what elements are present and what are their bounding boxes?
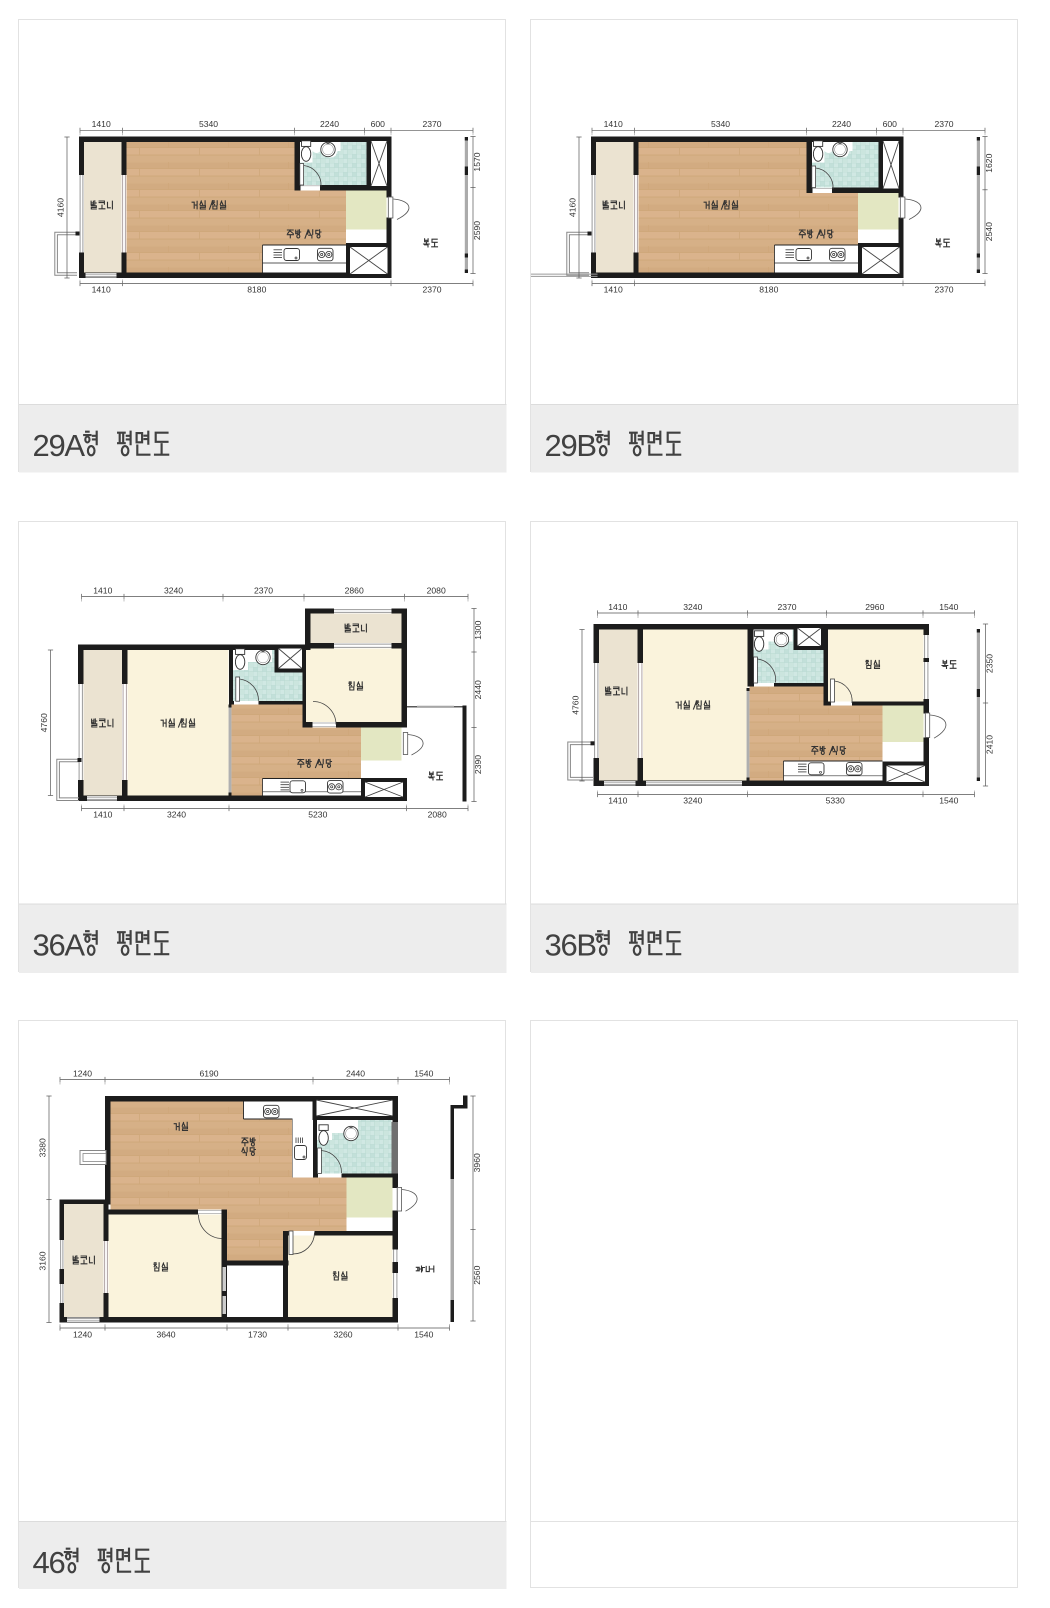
svg-text:5340: 5340: [199, 119, 218, 129]
svg-text:2370: 2370: [934, 285, 953, 295]
svg-text:600: 600: [371, 119, 386, 129]
svg-text:2540: 2540: [984, 222, 994, 241]
svg-text:1240: 1240: [73, 1068, 92, 1078]
svg-text:2440: 2440: [346, 1068, 365, 1078]
svg-text:1540: 1540: [414, 1068, 433, 1078]
svg-text:2240: 2240: [320, 119, 339, 129]
svg-text:4160: 4160: [568, 198, 578, 217]
svg-text:3260: 3260: [333, 1330, 352, 1340]
svg-text:1410: 1410: [92, 119, 111, 129]
svg-text:1730: 1730: [248, 1330, 267, 1340]
svg-text:1240: 1240: [73, 1330, 92, 1340]
svg-text:4760: 4760: [571, 695, 581, 714]
svg-text:2370: 2370: [934, 119, 953, 129]
svg-text:36A: 36A: [33, 928, 86, 963]
svg-text:2390: 2390: [473, 755, 483, 774]
svg-text:46: 46: [33, 1545, 65, 1580]
svg-text:1300: 1300: [473, 620, 483, 639]
svg-text:1570: 1570: [472, 152, 482, 171]
svg-text:3640: 3640: [156, 1330, 175, 1340]
svg-text:2350: 2350: [985, 654, 995, 673]
svg-text:3240: 3240: [683, 796, 702, 806]
svg-text:1410: 1410: [604, 285, 623, 295]
svg-text:8180: 8180: [759, 285, 778, 295]
svg-text:3240: 3240: [683, 602, 702, 612]
svg-text:2080: 2080: [428, 810, 447, 820]
svg-text:5330: 5330: [826, 796, 845, 806]
svg-text:1410: 1410: [93, 585, 112, 595]
svg-text:5340: 5340: [711, 119, 730, 129]
svg-text:36B: 36B: [545, 928, 597, 963]
svg-text:2860: 2860: [345, 585, 364, 595]
svg-text:1410: 1410: [93, 810, 112, 820]
svg-text:1410: 1410: [604, 119, 623, 129]
svg-text:2590: 2590: [472, 221, 482, 240]
svg-text:1540: 1540: [414, 1330, 433, 1340]
svg-text:1540: 1540: [939, 796, 958, 806]
svg-text:2370: 2370: [422, 285, 441, 295]
svg-text:6190: 6190: [199, 1068, 218, 1078]
svg-text:2410: 2410: [985, 735, 995, 754]
svg-text:1540: 1540: [939, 602, 958, 612]
svg-text:3160: 3160: [38, 1251, 48, 1270]
svg-text:3240: 3240: [164, 585, 183, 595]
svg-text:1410: 1410: [92, 285, 111, 295]
svg-text:3240: 3240: [167, 810, 186, 820]
svg-text:8180: 8180: [247, 285, 266, 295]
svg-text:1410: 1410: [608, 602, 627, 612]
svg-text:2370: 2370: [254, 585, 273, 595]
svg-text:3380: 3380: [38, 1138, 48, 1157]
svg-text:2080: 2080: [427, 585, 446, 595]
svg-text:29B: 29B: [545, 428, 597, 463]
svg-text:29A: 29A: [33, 428, 86, 463]
svg-text:600: 600: [883, 119, 898, 129]
svg-text:2440: 2440: [473, 680, 483, 699]
svg-text:4160: 4160: [56, 198, 66, 217]
svg-text:2370: 2370: [422, 119, 441, 129]
svg-text:1620: 1620: [984, 153, 994, 172]
svg-text:2240: 2240: [832, 119, 851, 129]
svg-text:1410: 1410: [608, 796, 627, 806]
svg-text:5230: 5230: [308, 810, 327, 820]
svg-text:2370: 2370: [777, 602, 796, 612]
svg-text:4760: 4760: [39, 713, 49, 732]
svg-text:2560: 2560: [472, 1265, 482, 1284]
svg-text:3960: 3960: [472, 1153, 482, 1172]
svg-text:2960: 2960: [865, 602, 884, 612]
